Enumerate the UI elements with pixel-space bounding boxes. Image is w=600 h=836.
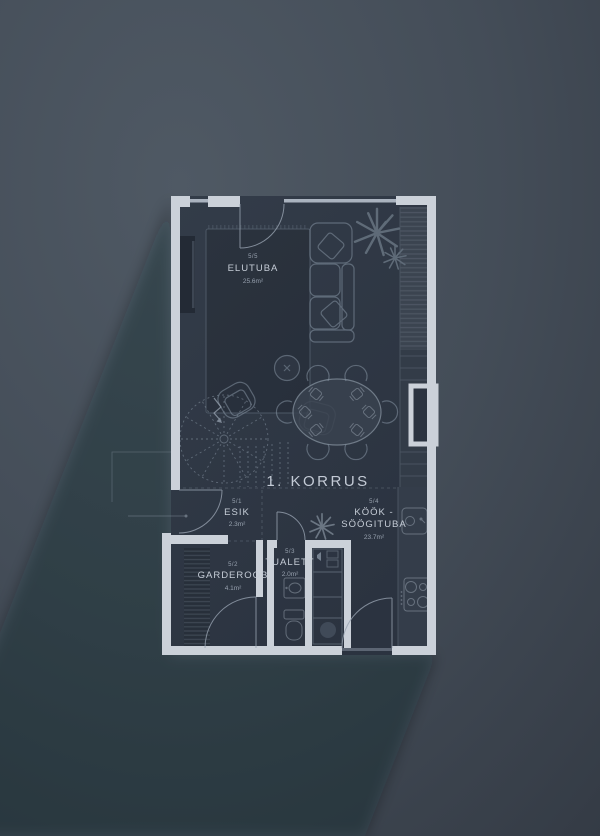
room-name-label: ESIK [224, 507, 250, 518]
coffee-table [275, 356, 300, 381]
wardrobe-shelves [184, 548, 210, 646]
floor-plan-canvas: 5/5 ELUTUBA 25.6m² 5/1 ESIK 2.3m² 5/2 GA… [0, 0, 600, 836]
door-threshold [342, 648, 392, 651]
room-area-label: 4.1m² [225, 585, 242, 592]
room-name-label: ELUTUBA [228, 263, 279, 274]
dining-table [293, 379, 381, 445]
room-unit-label: 5/2 [228, 562, 238, 568]
room-area-label: 2.3m² [229, 521, 246, 528]
room-unit-label: 5/1 [232, 499, 242, 505]
room-unit-label: 5/3 [285, 549, 295, 555]
rug [206, 227, 310, 413]
window [190, 199, 208, 203]
room-name-label: TUALETT [265, 557, 314, 568]
window [284, 199, 396, 203]
room-unit-label: 5/4 [369, 499, 379, 505]
room-unit-label: 5/5 [248, 254, 258, 260]
room-name-label: SÖÖGITUBA [341, 519, 406, 530]
floor-plan-scene: 5/5 ELUTUBA 25.6m² 5/1 ESIK 2.3m² 5/2 GA… [0, 0, 600, 836]
room-area-label: 2.0m² [282, 571, 299, 578]
room-name-label: GARDEROOB [198, 570, 269, 581]
room-name-label: KÖÖK - [354, 507, 393, 518]
washing-machine [320, 622, 336, 638]
floor-title: 1. KORRUS [266, 473, 369, 490]
room-area-label: 23.7m² [364, 534, 385, 541]
room-area-label: 25.6m² [243, 278, 264, 285]
